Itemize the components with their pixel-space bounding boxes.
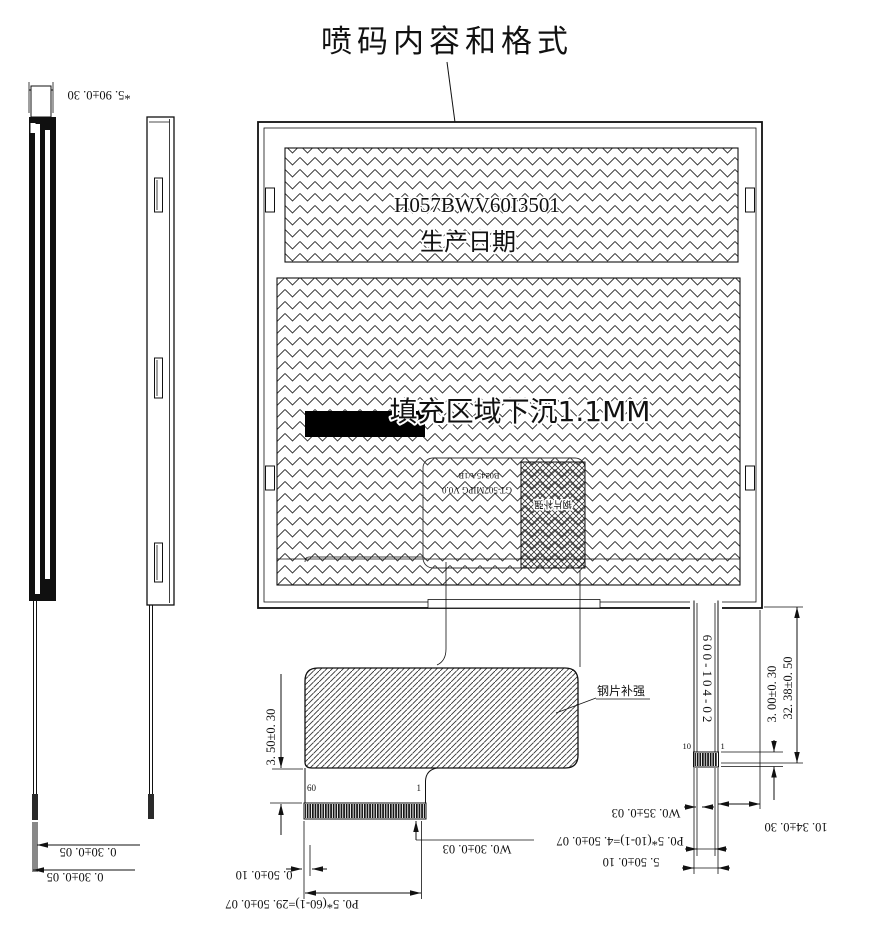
section-body bbox=[29, 117, 56, 601]
side-view-section: *5. 90±0. 30 0. 30±0. 05 0. 30±0. 05 bbox=[29, 82, 140, 884]
bottom-edge-notch bbox=[428, 600, 600, 609]
pin-width-main-dimension: W0. 30±0. 03 bbox=[416, 821, 534, 856]
dense-hatch-patch bbox=[521, 462, 585, 568]
pin-count-left: 60 bbox=[307, 783, 317, 793]
section-top-cap bbox=[31, 86, 51, 117]
neck-height-dim: 3. 50±0. 30 bbox=[264, 709, 278, 766]
pin-count-right: 1 bbox=[417, 783, 422, 793]
tail-part-number: 600-104-02 bbox=[700, 635, 715, 726]
tail-width-dimension: 5. 50±0. 10 bbox=[603, 855, 730, 869]
production-date-label: 生产日期 bbox=[420, 228, 516, 256]
film-thickness-bottom-dim: 0. 30±0. 05 bbox=[47, 870, 104, 884]
dimensions-10pin: W0. 35±0. 03 P0. 5*(10-1)=4. 50±0. 07 5.… bbox=[556, 607, 827, 874]
drawing-canvas: 喷码内容和格式 *5. 90±0. 30 0. 30±0. 05 bbox=[0, 0, 878, 929]
pin-pitch-tail-dim: P0. 5*(10-1)=4. 50±0. 07 bbox=[556, 834, 683, 848]
pin-pitch-tail-dimension: P0. 5*(10-1)=4. 50±0. 07 bbox=[556, 834, 727, 849]
film-dimension-top: 0. 30±0. 05 bbox=[37, 845, 140, 859]
panel-part-number: H057BWV60I3501 bbox=[394, 193, 560, 217]
tail-length-dim: 32. 38±0. 50 bbox=[781, 656, 795, 719]
fpc-stiffener-hatch bbox=[305, 668, 578, 768]
tail-pin-right: 1 bbox=[721, 741, 725, 751]
back-patch-label: 钢片补强 bbox=[534, 498, 573, 510]
fpc-connector-60pin bbox=[304, 803, 426, 819]
section-fpc-tail bbox=[32, 601, 38, 872]
tail-offset-dim: 10. 34±0. 30 bbox=[764, 820, 827, 834]
dimensions-60pin: 0. 50±0. 10 P0. 5*(60-1)=29. 50±0. 07 W0… bbox=[225, 821, 534, 911]
main-panel: H057BWV60I3501 生产日期 填充区域下沉1.1MM B0245A/1… bbox=[258, 122, 762, 609]
stiffener-label: 钢片补强 bbox=[597, 684, 645, 698]
tail-length-dimension: 32. 38±0. 50 bbox=[721, 607, 803, 763]
contact-height-dimension: 3. 00±0. 30 bbox=[721, 666, 783, 800]
right-fpc-tail: 600-104-02 10 1 bbox=[683, 601, 725, 768]
pin-width-tail-dimension: W0. 35±0. 03 bbox=[612, 806, 714, 820]
contact-height-dim: 3. 00±0. 30 bbox=[765, 666, 779, 723]
pin-width-main-dim: W0. 30±0. 03 bbox=[443, 842, 512, 856]
fpc-connector-10pin bbox=[694, 752, 719, 767]
neck-height-dimension: 3. 50±0. 30 bbox=[264, 674, 303, 835]
fill-note-text: 填充区域下沉1.1MM bbox=[390, 395, 651, 428]
pin-width-tail-dim: W0. 35±0. 03 bbox=[612, 806, 681, 820]
side-view-outline bbox=[147, 117, 174, 819]
back-print-line2: GT-507MIPG V0.0 bbox=[441, 485, 512, 495]
panel-thickness-dim: *5. 90±0. 30 bbox=[67, 88, 130, 102]
engineering-drawing: 喷码内容和格式 *5. 90±0. 30 0. 30±0. 05 bbox=[0, 0, 878, 929]
pin-margin-dimension: 0. 50±0. 10 bbox=[236, 868, 327, 882]
outline-fpc-tail bbox=[148, 605, 154, 819]
film-dimension-bottom: 0. 30±0. 05 bbox=[33, 870, 135, 884]
pin-margin-dim: 0. 50±0. 10 bbox=[236, 868, 293, 882]
tail-width-dim: 5. 50±0. 10 bbox=[603, 855, 660, 869]
tail-pin-left: 10 bbox=[683, 741, 692, 751]
pin-pitch-main-dimension: P0. 5*(60-1)=29. 50±0. 07 bbox=[225, 893, 421, 911]
fpc-assembly: 60 1 钢片补强 3. 50±0. 30 bbox=[264, 668, 650, 835]
film-thickness-top-dim: 0. 30±0. 05 bbox=[60, 845, 117, 859]
title-text: 喷码内容和格式 bbox=[321, 24, 573, 60]
back-print-line1: B0245A/1B bbox=[458, 471, 499, 481]
pin-pitch-main-dim: P0. 5*(60-1)=29. 50±0. 07 bbox=[225, 897, 358, 911]
